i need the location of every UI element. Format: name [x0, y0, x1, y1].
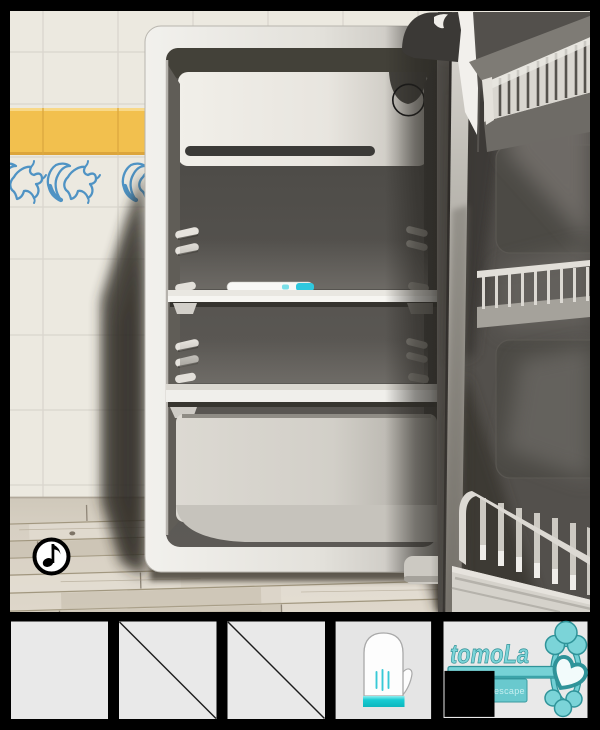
svg-text:escape: escape — [494, 686, 525, 696]
svg-text:tomoLa: tomoLa — [450, 639, 529, 669]
